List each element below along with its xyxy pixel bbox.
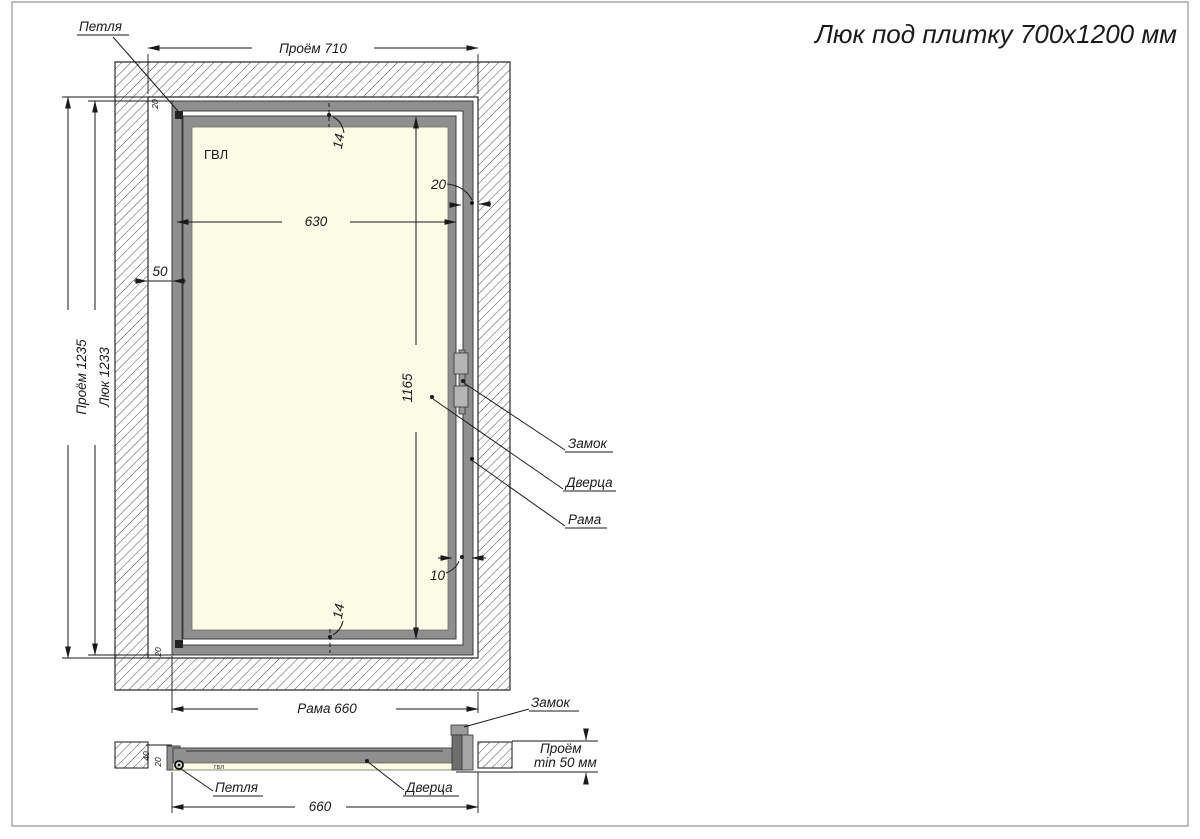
- bottom-left-offset-label: 20: [153, 647, 163, 658]
- lock-section: [451, 725, 473, 770]
- hinge-label-section: Петля: [215, 780, 258, 795]
- wall-section-right: [478, 742, 512, 768]
- section-width-label: 660: [309, 799, 332, 814]
- opening-height-label: Проём 1235: [74, 339, 89, 415]
- door-label-section: Дверца: [404, 780, 453, 795]
- drawing-page: Люк под плитку 700х1200 мм ГВЛ Проём 710: [0, 0, 1200, 839]
- door-section-body: [173, 748, 452, 763]
- profile-height-label: 40: [141, 751, 151, 761]
- hatch-height-label: Люк 1233: [97, 347, 112, 408]
- door-width-label: 630: [305, 214, 328, 229]
- top-left-offset-label: 20: [150, 99, 160, 110]
- drawing-canvas: Люк под плитку 700х1200 мм ГВЛ Проём 710: [0, 0, 1200, 839]
- bottom-gap-label: 14: [330, 603, 347, 620]
- opening-depth-line2: min 50 мм: [534, 755, 597, 770]
- top-gap-label: 14: [330, 133, 347, 150]
- door-height-label: 1165: [400, 373, 415, 403]
- page-title: Люк под плитку 700х1200 мм: [813, 19, 1177, 49]
- lock-callout-section: Замок: [464, 695, 579, 727]
- opening-depth-note: Проём min 50 мм: [456, 730, 598, 783]
- left-gap-label: 50: [152, 264, 168, 279]
- lock-label-section: Замок: [531, 695, 571, 710]
- hinge-section: [175, 761, 183, 769]
- lock-label-front: Замок: [568, 436, 608, 451]
- front-view: ГВЛ Проём 710 Проём 1235 Люк 1233 20: [62, 19, 616, 716]
- opening-width-label: Проём 710: [279, 41, 347, 56]
- hinge-label-front: Петля: [79, 19, 122, 34]
- hinge-bottom: [175, 640, 183, 648]
- bottom-right-gap-label: 10: [430, 568, 446, 583]
- hinge-top: [175, 111, 183, 119]
- frame-label-front: Рама: [568, 512, 602, 527]
- right-frame-offset-label: 20: [430, 177, 447, 192]
- panel-thickness-label: 20: [153, 757, 163, 768]
- frame-width-label: Рама 660: [297, 701, 357, 716]
- hinge-callout-section: Петля: [181, 769, 263, 796]
- panel-material-label: ГВЛ: [204, 147, 228, 162]
- opening-depth-line1: Проём: [540, 741, 582, 756]
- panel-material-label-section: гвл: [214, 764, 224, 771]
- door-label-front: Дверца: [564, 475, 613, 490]
